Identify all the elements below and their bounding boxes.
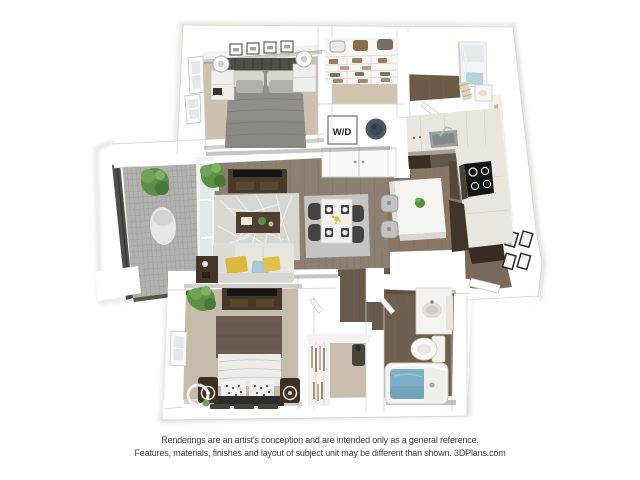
svg-text:W/D: W/D	[333, 127, 352, 138]
svg-text:Renderings are an artist's con: Renderings are an artist's conception an…	[161, 435, 479, 445]
svg-text:Features, materials, finishes: Features, materials, finishes and layout…	[134, 448, 505, 458]
